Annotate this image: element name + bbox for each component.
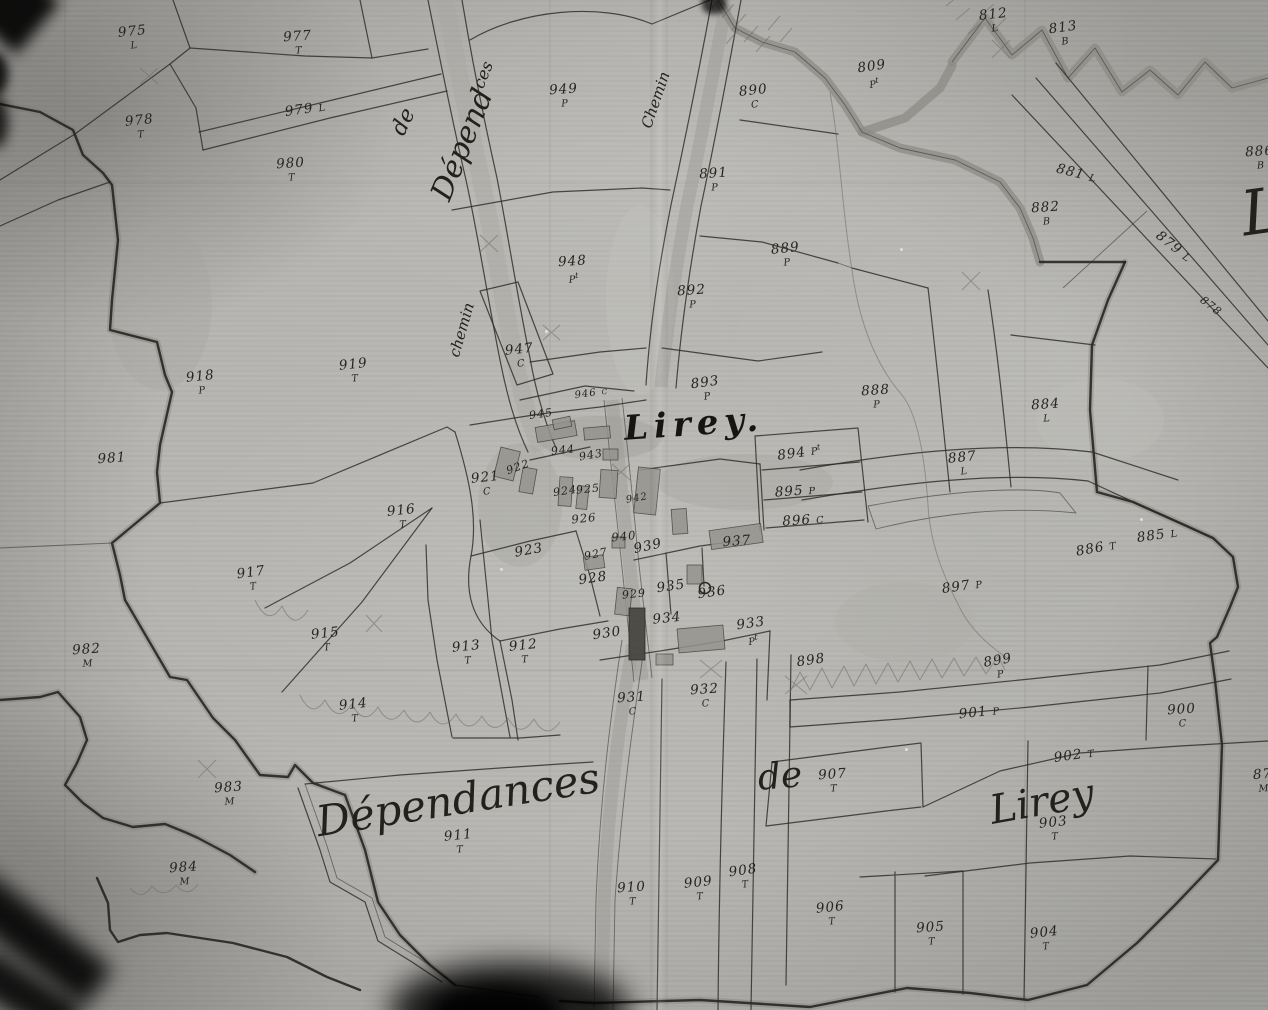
parcel-label-891: 891P (699, 166, 729, 193)
parcel-label-978: 978T (124, 113, 155, 141)
parcel-label-889: 889P (770, 241, 801, 269)
parcel-label-893: 893P (690, 375, 722, 404)
parcel-label-886: 886B (1245, 144, 1268, 171)
parcel-label-887: 887L (947, 450, 978, 478)
parcel-label-945: 945 (528, 407, 553, 421)
parcel-label-917: 917T (236, 565, 268, 594)
parcel-label-905: 905T (916, 920, 946, 947)
parcel-label-948: 948Pt (558, 254, 589, 285)
parcel-label-918: 918P (185, 369, 216, 397)
parcel-label-929: 929 (621, 587, 646, 600)
parcel-label-934: 934 (652, 611, 682, 627)
parcel-label-925: 925 (575, 482, 600, 495)
parcel-label-913: 913T (451, 639, 482, 667)
parcel-label-947: 947C (504, 342, 535, 370)
parcel-label-812: 812L (978, 7, 1009, 35)
parcel-label-910: 910T (617, 880, 647, 907)
cadastral-map: 975L977T978T979L980T949P890C809Pt812L813… (0, 0, 1268, 1010)
script-label-de-south: de (756, 757, 803, 797)
parcel-label-896: 896C (782, 513, 824, 529)
parcel-label-916: 916T (386, 503, 417, 531)
parcel-label-909: 909T (683, 875, 714, 903)
parcel-label-931: 931C (617, 690, 647, 717)
parcel-label-921: 921C (470, 470, 501, 498)
parcel-label-949: 949P (549, 82, 579, 109)
river-band (718, 0, 1268, 262)
parcel-label-914: 914T (338, 697, 369, 725)
parcel-label-904: 904T (1029, 925, 1060, 953)
parcel-label-981: 981 (97, 451, 127, 466)
parcel-label-906: 906T (815, 900, 846, 928)
parcel-label-912: 912T (508, 638, 539, 666)
parcel-label-882: 882B (1031, 200, 1061, 227)
parcel-label-892: 892P (677, 283, 707, 310)
parcel-label-980: 980T (276, 156, 306, 183)
script-label-village-title: Lirey. (623, 402, 765, 446)
parcel-label-87: 87M (1253, 768, 1268, 794)
parcel-label-884: 884L (1031, 397, 1061, 424)
parcel-label-977: 977T (283, 29, 313, 56)
parcel-label-907: 907T (818, 767, 848, 794)
parcel-label-900: 900C (1167, 702, 1197, 729)
parcel-label-899: 899P (983, 652, 1016, 682)
parcel-label-932: 932C (690, 682, 720, 709)
parcel-label-984: 984M (169, 860, 199, 887)
parcel-label-924: 924 (552, 484, 577, 498)
parcel-label-919: 919T (338, 357, 369, 385)
parcel-label-890: 890C (738, 83, 769, 111)
parcel-label-888: 888P (861, 383, 891, 410)
parcel-label-911: 911T (443, 828, 474, 856)
parcel-label-895: 895P (774, 484, 815, 500)
paper-specks (545, 330, 548, 333)
parcel-label-983: 983M (214, 780, 244, 807)
parcel-label-937: 937 (722, 534, 752, 549)
parcel-label-926: 926 (571, 512, 597, 526)
parcel-label-813: 813B (1048, 20, 1080, 49)
parcel-label-944: 944 (550, 443, 575, 456)
parcel-label-908: 908T (728, 863, 760, 892)
parcel-label-915: 915T (310, 626, 341, 654)
parcel-label-975: 975L (117, 24, 148, 52)
parcel-label-933: 933Pt (736, 615, 769, 648)
parcel-label-982: 982M (72, 642, 102, 669)
parcel-label-809: 809Pt (857, 58, 890, 91)
